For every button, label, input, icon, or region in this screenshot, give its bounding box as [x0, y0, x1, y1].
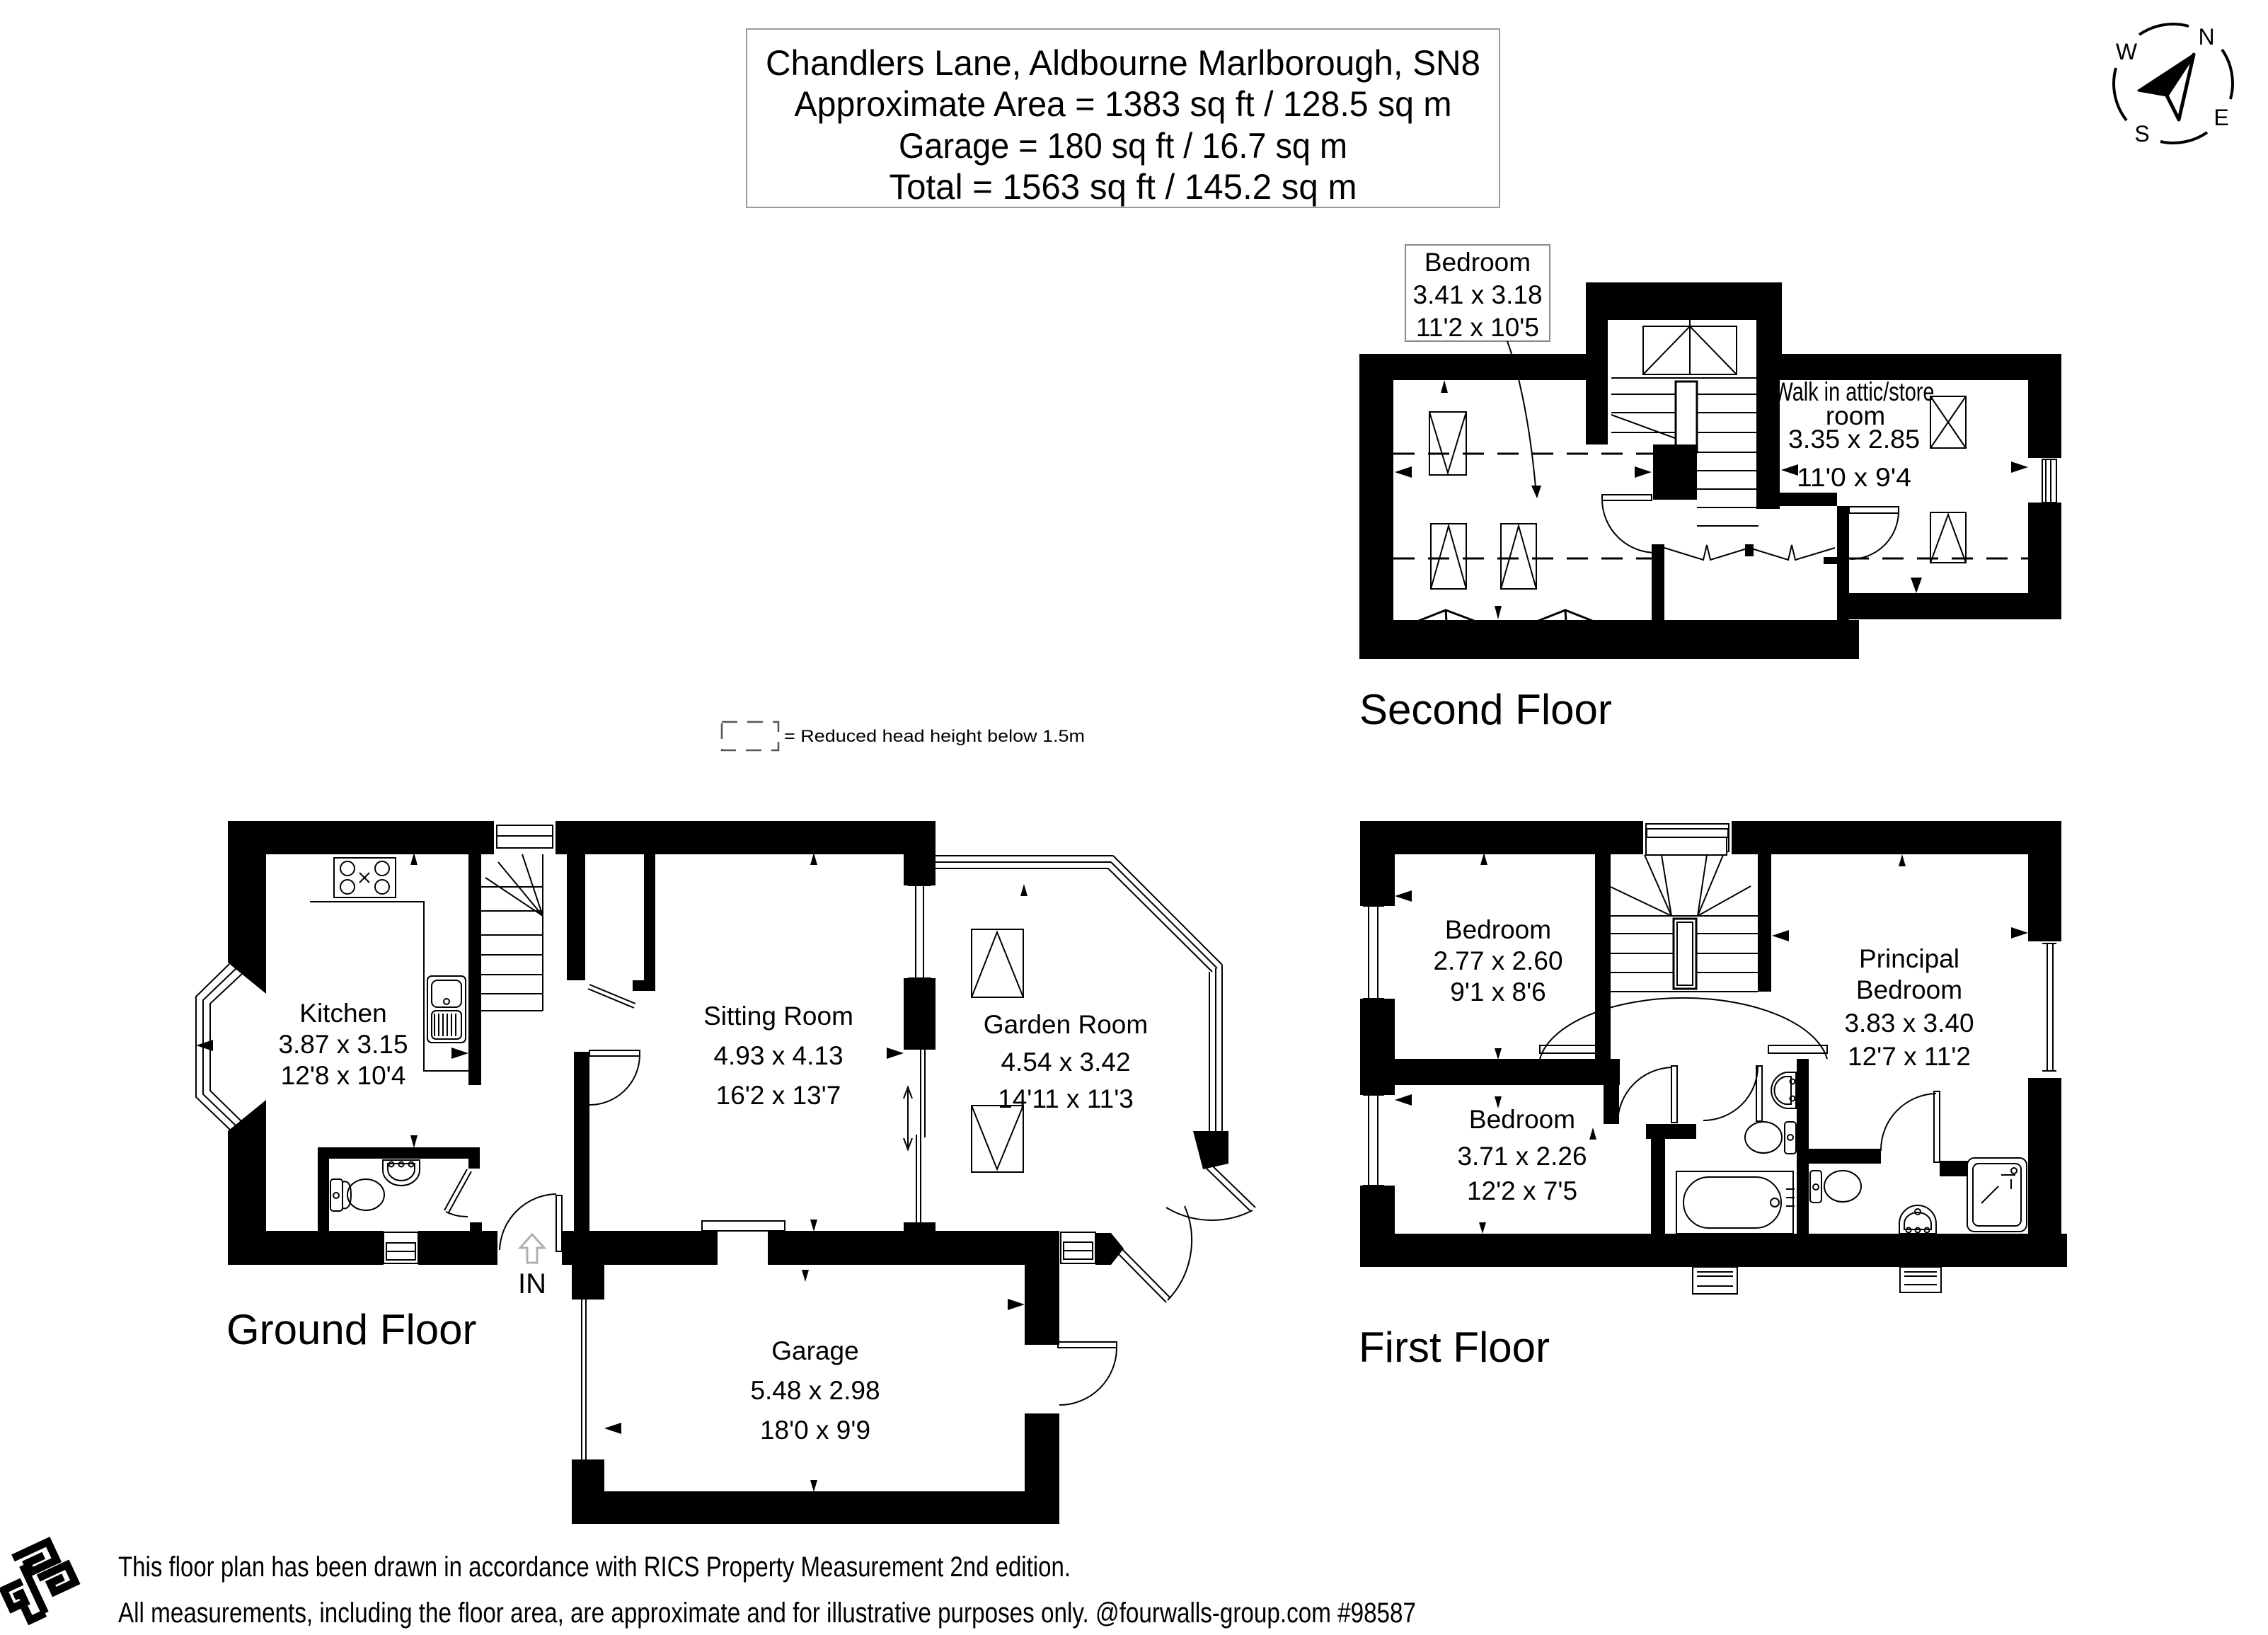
svg-text:Garage: Garage — [771, 1336, 858, 1365]
svg-text:S: S — [2134, 121, 2149, 147]
svg-text:E: E — [2214, 105, 2228, 130]
svg-text:W: W — [2116, 39, 2138, 64]
svg-text:Total = 1563 sq ft / 145.2 sq: Total = 1563 sq ft / 145.2 sq m — [890, 167, 1357, 207]
svg-text:All measurements, including th: All measurements, including the floor ar… — [118, 1597, 1416, 1629]
svg-text:3.87 x 3.15: 3.87 x 3.15 — [278, 1030, 408, 1059]
svg-text:Ground Floor: Ground Floor — [226, 1306, 477, 1353]
svg-text:3.41 x 3.18: 3.41 x 3.18 — [1412, 280, 1542, 309]
svg-text:12'7 x 11'2: 12'7 x 11'2 — [1848, 1042, 1971, 1071]
svg-text:3.71 x 2.26: 3.71 x 2.26 — [1457, 1142, 1587, 1171]
svg-text:4.93 x 4.13: 4.93 x 4.13 — [713, 1041, 843, 1070]
svg-text:Bedroom: Bedroom — [1424, 248, 1531, 277]
svg-text:Garden Room: Garden Room — [984, 1010, 1148, 1039]
svg-text:This floor plan has been drawn: This floor plan has been drawn in accord… — [118, 1551, 1071, 1583]
svg-text:Garage = 180 sq ft / 16.7 sq m: Garage = 180 sq ft / 16.7 sq m — [899, 126, 1347, 166]
svg-text:N: N — [2198, 24, 2214, 50]
svg-text:5.48 x 2.98: 5.48 x 2.98 — [750, 1376, 880, 1405]
svg-text:12'8 x 10'4: 12'8 x 10'4 — [281, 1061, 406, 1090]
svg-text:16'2 x 13'7: 16'2 x 13'7 — [716, 1081, 841, 1110]
svg-text:Bedroom: Bedroom — [1445, 915, 1551, 944]
svg-text:Sitting Room: Sitting Room — [703, 1002, 853, 1031]
svg-text:4.54 x 3.42: 4.54 x 3.42 — [1001, 1048, 1130, 1077]
svg-text:11'0 x 9'4: 11'0 x 9'4 — [1797, 463, 1911, 492]
svg-text:14'11 x 11'3: 14'11 x 11'3 — [998, 1084, 1134, 1113]
svg-text:Bedroom: Bedroom — [1856, 975, 1962, 1004]
svg-text:= Reduced head height below 1.: = Reduced head height below 1.5m — [784, 727, 1085, 746]
svg-text:2.77 x 2.60: 2.77 x 2.60 — [1433, 946, 1562, 975]
svg-text:3.35 x 2.85: 3.35 x 2.85 — [1788, 425, 1920, 454]
svg-text:11'2 x 10'5: 11'2 x 10'5 — [1416, 313, 1539, 342]
svg-text:12'2 x 7'5: 12'2 x 7'5 — [1467, 1176, 1577, 1205]
svg-text:Kitchen: Kitchen — [299, 999, 386, 1028]
svg-text:IN: IN — [518, 1268, 546, 1300]
svg-text:Principal: Principal — [1859, 944, 1959, 973]
svg-text:9'1 x 8'6: 9'1 x 8'6 — [1450, 977, 1546, 1006]
svg-text:Bedroom: Bedroom — [1469, 1105, 1575, 1134]
svg-text:18'0 x 9'9: 18'0 x 9'9 — [760, 1416, 870, 1445]
svg-text:Second Floor: Second Floor — [1359, 686, 1612, 733]
svg-text:Chandlers Lane, Aldbourne Marl: Chandlers Lane, Aldbourne Marlborough, S… — [766, 43, 1480, 83]
svg-text:First Floor: First Floor — [1359, 1324, 1550, 1371]
svg-text:Approximate Area = 1383 sq ft: Approximate Area = 1383 sq ft / 128.5 sq… — [795, 84, 1452, 124]
svg-text:3.83 x 3.40: 3.83 x 3.40 — [1844, 1009, 1974, 1038]
